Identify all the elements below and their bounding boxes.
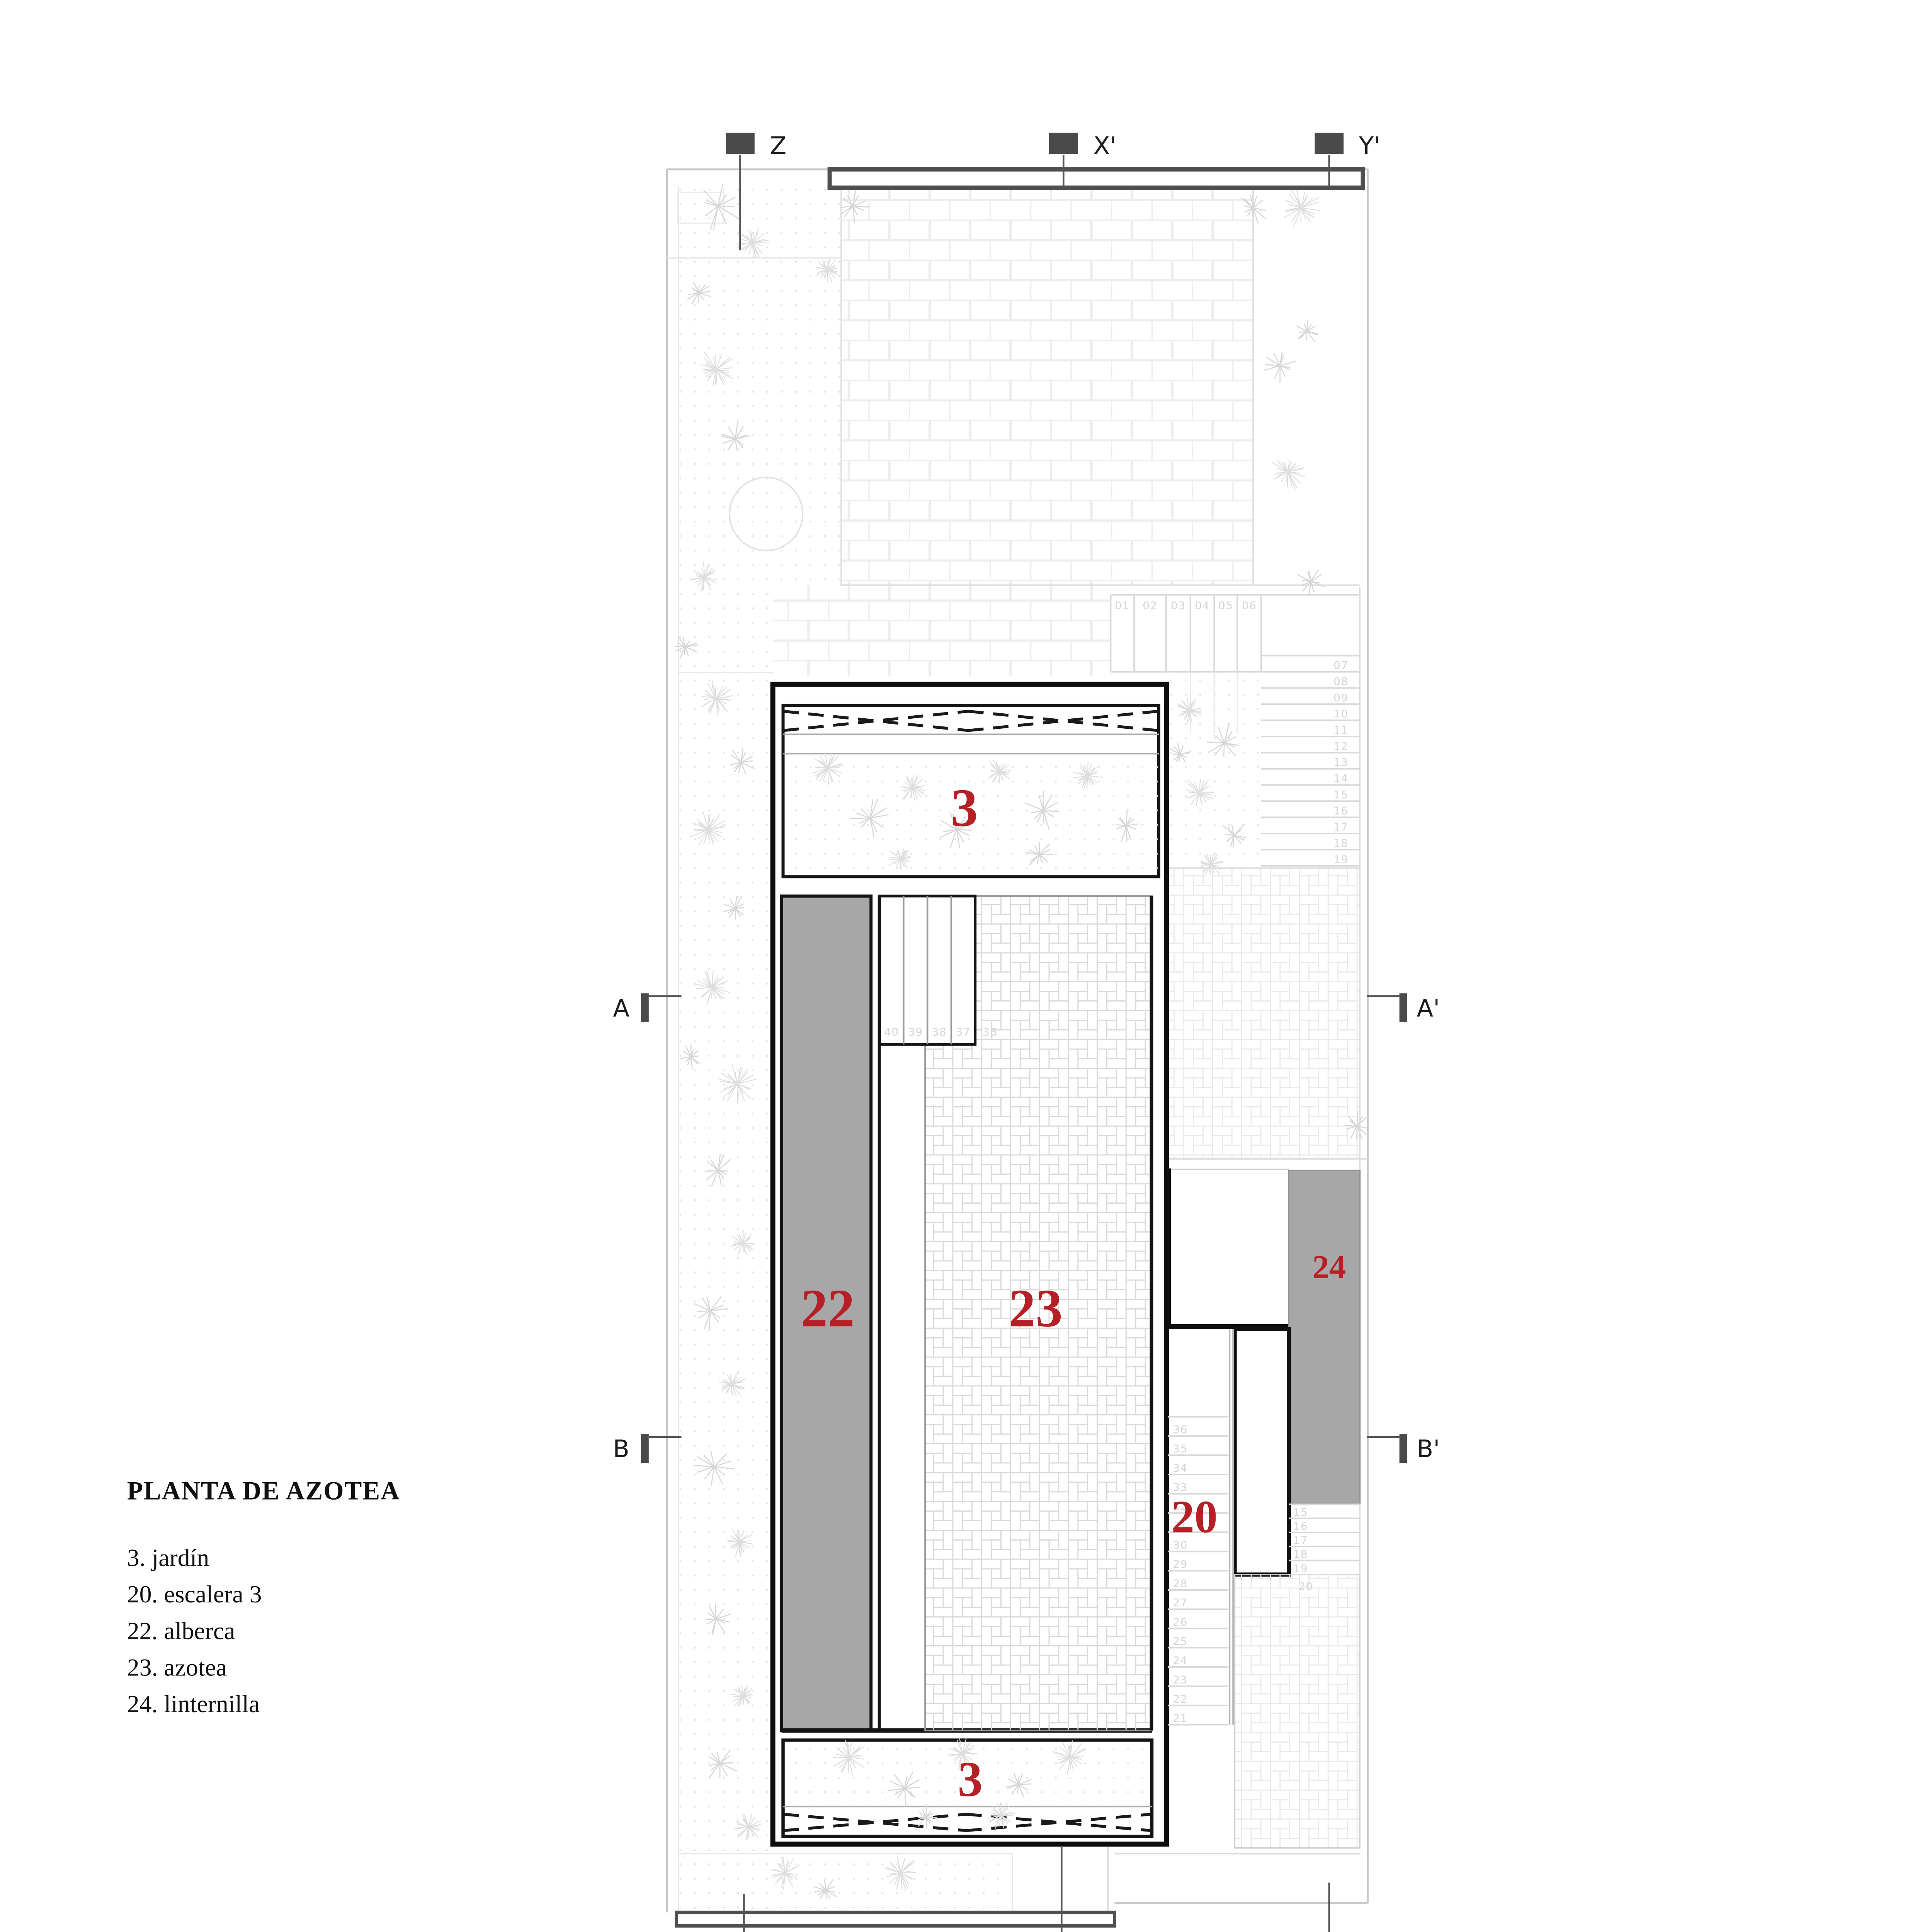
step-number: 16: [1333, 804, 1348, 817]
room-label-linternilla: 24: [1312, 1248, 1346, 1286]
plan-line: [826, 1890, 826, 1899]
plan-line: [737, 1084, 738, 1104]
plan-line: [1357, 1111, 1358, 1126]
step-number: 36: [1173, 1423, 1187, 1436]
step-number: 15: [1293, 1506, 1308, 1519]
plan-line: [918, 1817, 926, 1818]
marker-square: [726, 133, 755, 154]
step-number: 38: [932, 1026, 947, 1038]
marker-bar: [641, 1434, 649, 1463]
step-number: 12: [1333, 740, 1348, 752]
floor-plan: 0102030405060708091011121314151617181936…: [0, 0, 1932, 1932]
marker-bar: [641, 993, 649, 1022]
step-number: 10: [1333, 707, 1348, 720]
plan-line: [849, 1757, 849, 1774]
marker-square: [1315, 133, 1344, 154]
step-number: 39: [908, 1026, 923, 1038]
legend-title: PLANTA DE AZOTEA: [127, 1476, 400, 1505]
section-marker-label-z: Z: [770, 132, 787, 160]
section-marker-label-a: A: [613, 994, 629, 1022]
legend-item-alberca: 22. alberca: [127, 1617, 235, 1645]
step-number: 09: [1333, 691, 1348, 704]
plan-line: [720, 1763, 733, 1763]
garden-dots-west: [679, 187, 773, 1912]
step-number: 22: [1173, 1692, 1187, 1705]
terrace-east-paving: [1168, 868, 1360, 1159]
terrace-southeast-paving: [1235, 1575, 1360, 1848]
street-wall-south: [677, 1912, 1115, 1926]
garden-dots-northwest: [773, 187, 841, 585]
plan-line: [1345, 1125, 1357, 1126]
street-wall-north: [830, 169, 1363, 187]
legend: PLANTA DE AZOTEA 3. jardín 20. escalera …: [127, 1476, 400, 1718]
plan-line: [716, 355, 716, 369]
step-number: 18: [1333, 837, 1348, 849]
step-number: 14: [1333, 772, 1348, 785]
section-marker-label-y-prime: Y': [1359, 132, 1380, 160]
terrace-north: [773, 188, 1360, 676]
step-number: 11: [1333, 724, 1348, 736]
step-number: 15: [1333, 788, 1348, 801]
step-number: 07: [1333, 659, 1348, 672]
plan-line: [697, 1311, 710, 1312]
plan-line: [905, 1787, 920, 1788]
plan-line: [901, 1872, 916, 1873]
roof-stair-box: [880, 896, 975, 1044]
plan-line: [739, 1530, 739, 1542]
room-label-jardin-north: 3: [951, 778, 978, 838]
legend-item-azotea: 23. azotea: [127, 1654, 227, 1681]
step-number: 26: [1173, 1616, 1187, 1628]
step-number: 01: [1115, 599, 1129, 612]
plan-line: [1264, 366, 1280, 371]
stair-landing: [1235, 1329, 1289, 1575]
plan-line: [1280, 361, 1296, 366]
tree-shrub: [1272, 460, 1305, 489]
step-number: 16: [1293, 1520, 1308, 1532]
step-number: 18: [1293, 1548, 1308, 1561]
plan-line: [716, 369, 716, 383]
step-number: 27: [1173, 1596, 1187, 1609]
plan-line: [1253, 208, 1253, 218]
step-number: 13: [1333, 756, 1348, 769]
legend-item-escalera: 20. escalera 3: [127, 1580, 262, 1608]
section-marker-a-prime: A': [1367, 993, 1440, 1022]
step-number: 24: [1173, 1654, 1187, 1667]
marker-bar: [1400, 993, 1407, 1022]
step-number: 17: [1333, 821, 1348, 833]
room-label-azotea: 23: [1009, 1279, 1062, 1338]
plan-line: [901, 787, 913, 787]
step-number: 35: [1173, 1442, 1187, 1455]
plan-line: [693, 829, 708, 830]
step-number: 19: [1333, 853, 1348, 866]
plan-line: [1039, 854, 1053, 855]
step-number: 25: [1173, 1635, 1187, 1648]
plan-line: [999, 772, 999, 781]
plan-line: [1311, 581, 1315, 592]
step-number: 17: [1293, 1534, 1308, 1547]
plan-line: [699, 285, 699, 293]
step-number: 08: [1333, 675, 1348, 688]
plan-line: [1357, 1126, 1357, 1139]
plan-line: [926, 1817, 937, 1818]
section-marker-label-x-prime: X': [1094, 132, 1117, 160]
step-number: 05: [1218, 599, 1233, 612]
terrace-north-paving: [841, 188, 1253, 585]
annex-room: [1167, 1168, 1289, 1327]
section-marker-label-b: B: [613, 1435, 629, 1463]
tree-shrub: [1284, 190, 1320, 228]
section-marker-label-b-prime: B': [1417, 1435, 1440, 1463]
step-number: 04: [1195, 599, 1209, 612]
plan-line: [1274, 366, 1280, 379]
room-label-escalera-3: 20: [1171, 1491, 1218, 1542]
section-marker-label-a-prime: A': [1417, 994, 1440, 1022]
step-number: 29: [1173, 1558, 1187, 1571]
plan-line: [716, 699, 732, 699]
terrace-north-paving-lower: [773, 585, 1111, 675]
plan-line: [850, 818, 870, 818]
step-number: 23: [1173, 1673, 1187, 1686]
step-number: 28: [1173, 1577, 1187, 1590]
legend-item-linternilla: 24. linternilla: [127, 1690, 260, 1718]
step-number: 02: [1143, 599, 1157, 612]
plan-line: [1307, 320, 1308, 331]
step-number: 34: [1173, 1461, 1187, 1474]
section-marker-b: B: [613, 1434, 681, 1463]
step-number: 19: [1293, 1562, 1308, 1575]
linternilla-area: [1289, 1170, 1360, 1503]
step-number: 21: [1173, 1712, 1187, 1725]
step-number: 20: [1298, 1580, 1313, 1593]
plan-line: [715, 1603, 716, 1619]
tree-palm: [1297, 320, 1318, 342]
plan-line: [1211, 855, 1211, 864]
room-label-alberca: 22: [801, 1279, 854, 1338]
garden-strip-south: [679, 1854, 1012, 1913]
plan-line: [1224, 743, 1224, 757]
step-number: 36: [983, 1026, 997, 1038]
step-number: 40: [884, 1026, 899, 1038]
marker-square: [1049, 133, 1078, 154]
section-marker-b-prime: B': [1367, 1434, 1440, 1463]
marker-bar: [1400, 1434, 1407, 1463]
step-number: 06: [1242, 599, 1257, 612]
tree-palm: [1297, 570, 1325, 594]
plan-line: [1301, 208, 1301, 223]
section-marker-y: Y: [1315, 1883, 1374, 1932]
section-marker-a: A: [613, 993, 681, 1022]
tree-palm: [1264, 352, 1296, 383]
step-number: 03: [1171, 599, 1185, 612]
room-label-jardin-south: 3: [957, 1752, 983, 1807]
step-number: 37: [956, 1026, 971, 1038]
legend-item-jardin: 3. jardín: [127, 1544, 209, 1571]
plan-line: [1000, 1802, 1001, 1815]
